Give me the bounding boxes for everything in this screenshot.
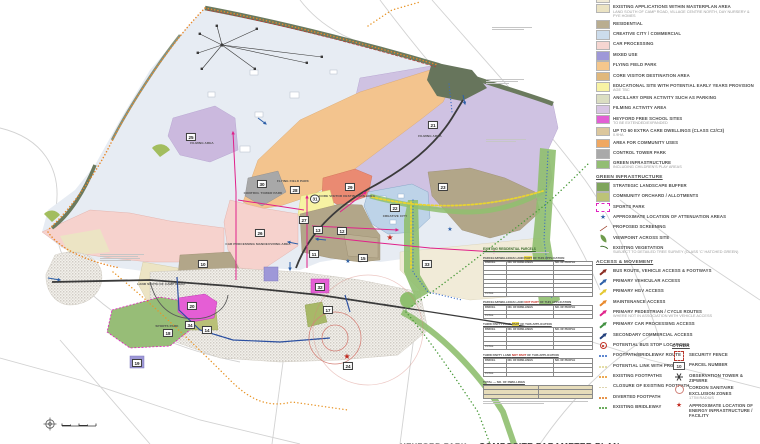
legend-item: RESIDENTIAL <box>596 21 758 29</box>
parcel-badge: 20 <box>187 302 197 310</box>
viewpoint-icon <box>596 235 610 243</box>
legend-item-label: CONTROL TOWER PARK <box>613 150 758 155</box>
legend-item: CREATIVE CITY / COMMERCIAL <box>596 31 758 39</box>
legend-item: SPORTS PARK <box>596 204 758 212</box>
legend-item: PRIMARY CAR PROCESSING ACCESS <box>596 321 758 329</box>
dots-icon <box>596 404 610 412</box>
cordon-icon <box>672 385 686 393</box>
swatch-icon <box>596 128 610 136</box>
annotation-note <box>492 26 532 31</box>
scale-bar <box>62 424 96 427</box>
legend-item: SECURITY FENCE <box>672 352 758 360</box>
legend-item-label: COMMUNITY ORCHARD / ALLOTMENTS <box>613 193 758 198</box>
swatch-icon <box>596 21 610 29</box>
annotation-note <box>100 253 144 262</box>
legend-item: ★APPROXIMATE LOCATION OF ATTENUATION ARE… <box>596 214 758 222</box>
redstar-icon: ★ <box>672 403 686 411</box>
legend-other-header: OTHER <box>672 344 758 349</box>
map-label: FILMING AREA <box>190 141 213 145</box>
swatch-icon <box>596 183 610 191</box>
swatch-icon <box>596 62 610 70</box>
legend-item-label: CAR PROCESSING <box>613 41 758 46</box>
legend-item: SECONDARY COMMERCIAL ACCESS <box>596 332 758 340</box>
schedule-table: PARCELNO. OF DWELLINGSNO. OF PEOPLETOTAL <box>483 305 593 319</box>
map-label: LAND SOUTH OF CAMP ROAD <box>137 282 185 286</box>
legend-item: CORE VISITOR DESTINATION AREA <box>596 73 758 81</box>
legend-item-sub: 177M RADIUS <box>689 396 758 400</box>
legend-item: AREA FOR COMMUNITY USES <box>596 140 758 148</box>
drawing-title: HEYFORD PARK - COMPOSITE PARAMETER PLAN … <box>400 436 633 444</box>
legend-item: 10PARCEL NUMBER <box>672 362 758 370</box>
asterisk-icon <box>672 373 686 381</box>
legend-item-label: CORE VISITOR DESTINATION AREA <box>613 73 758 78</box>
legend-item-label: PRIMARY HGV ACCESS <box>613 288 758 293</box>
parcel-badge: 13 <box>313 226 323 234</box>
legend-item-label: FILMING ACTIVITY AREA <box>613 105 758 110</box>
legend-item-label: MAINTENANCE ACCESS <box>613 299 758 304</box>
map-label: SPORTS PARK <box>155 324 178 328</box>
dots-icon <box>596 373 610 381</box>
svg-text:★: ★ <box>447 226 452 233</box>
swatch-icon <box>596 140 610 148</box>
compass-icon <box>44 418 57 431</box>
schedule-table-title: THIRD PARTY LAND PART OF THIS APPLICATIO… <box>483 322 593 326</box>
vegetation-icon <box>596 245 610 253</box>
parcel-badge: 28 <box>290 186 300 194</box>
legend-landuse: EXISTING COMMERCIAL AREASEXISTING APPLIC… <box>596 0 758 170</box>
svg-text:★: ★ <box>386 233 393 242</box>
legend-access-header: ACCESS & MOVEMENT <box>596 260 758 265</box>
legend-item-label: ANCILLARY OPEN ACTIVITY SUCH AS PARKING <box>613 95 758 100</box>
legend-item: ★APPROXIMATE LOCATION OF ENERGY INFRASTR… <box>672 403 758 418</box>
legend-item-label: APPROXIMATE LOCATION OF ENERGY INFRASTRU… <box>689 403 758 418</box>
annotation-note <box>486 138 526 143</box>
legend-item-label: BUS ROUTE, VEHICLE ACCESS & FOOTWAYS <box>613 268 758 273</box>
parcel-badge: 33 <box>422 260 432 268</box>
arrow-icon <box>596 278 610 286</box>
legend-item-label: AREA FOR COMMUNITY USES <box>613 140 758 145</box>
legend-item-label: FLYING FIELD PARK <box>613 62 758 67</box>
swatch-icon <box>596 193 610 201</box>
schedule-note <box>483 401 593 404</box>
parcel-badge: 10 <box>198 260 208 268</box>
parcel-badge: 34 <box>185 321 195 329</box>
legend-item: CORDON SANITAIRE EXCLUSION ZONES177M RAD… <box>672 385 758 400</box>
parcel-badge: 24 <box>343 362 353 370</box>
arrow-icon <box>596 321 610 329</box>
map-label: CREATIVE CITY <box>383 214 408 218</box>
schedule-table: PARCELNO. OF DWELLINGSNO. OF PEOPLETOTAL <box>483 327 593 350</box>
legend-green: STRATEGIC LANDSCAPE BUFFERCOMMUNITY ORCH… <box>596 183 758 255</box>
parcel-badge: 23 <box>438 183 448 191</box>
dots-icon <box>596 363 610 371</box>
legend-item: MIXED USE <box>596 52 758 60</box>
annotation-note <box>486 78 524 85</box>
schedule-table: PARCELNO. OF DWELLINGSNO. OF PEOPLETOTAL <box>483 261 593 297</box>
swatch-icon <box>596 31 610 39</box>
arrow-icon <box>596 268 610 276</box>
parcel-badge: 21 <box>428 121 438 129</box>
legend-item: OBSERVATION TOWER & ZIPWIRE <box>672 373 758 383</box>
parcelbox-icon: 10 <box>672 362 686 370</box>
legend-item: EXISTING APPLICATIONS WITHIN MASTERPLAN … <box>596 4 758 18</box>
swatch-icon <box>596 160 610 168</box>
sports-park <box>107 297 190 348</box>
sports-icon <box>596 204 610 212</box>
legend-item-label: SECURITY FENCE <box>689 352 758 357</box>
legend-item: CONTROL TOWER PARK <box>596 150 758 158</box>
legend-item-label: PRIMARY VEHICULAR ACCESS <box>613 278 758 283</box>
arrow-icon <box>596 332 610 340</box>
swatch-icon <box>596 150 610 158</box>
parcel-badge: 11 <box>309 250 319 258</box>
map-label: FILMING AREA <box>418 134 441 138</box>
masterplan-page: ★ ★ ★ ★ <box>0 0 760 444</box>
map-label: CORE VISITOR DESTINATION AREA <box>319 194 375 198</box>
legend-item-label: CREATIVE CITY / COMMERCIAL <box>613 31 758 36</box>
parcel-badge: 27 <box>299 216 309 224</box>
parcel-badge: 18 <box>163 329 173 337</box>
busstop-icon <box>596 342 610 350</box>
legend-item-sub: WHERE NOT IN ASSOCIATION WITH VEHICLE AC… <box>613 314 758 318</box>
legend-item: EDUCATIONAL SITE WITH POTENTIAL EARLY YE… <box>596 83 758 93</box>
schedule-table-title: PARCELS/DWELLINGS LAND NOT PART OF THIS … <box>483 300 593 304</box>
swatch-icon <box>596 95 610 103</box>
swatch-icon <box>596 116 610 124</box>
dots-icon <box>596 352 610 360</box>
schedule-intro: EXISTING RESIDENTIAL PARCELS <box>483 247 593 251</box>
swatch-icon <box>596 4 610 12</box>
map-label: CONTROL TOWER PARK <box>244 191 283 195</box>
legend-item: PRIMARY PEDESTRIAN / CYCLE ROUTESWHERE N… <box>596 309 758 319</box>
legend-item-label: RESIDENTIAL <box>613 21 758 26</box>
swatch-icon <box>596 83 610 91</box>
legend-item: VIEWPOINT ACROSS SITE <box>596 235 758 243</box>
dwelling-schedule-tables: EXISTING RESIDENTIAL PARCELS PARCELS/DWE… <box>483 247 593 405</box>
legend-item-label: MIXED USE <box>613 52 758 57</box>
summary-table-title: TOTAL — NO. OF DWELLINGS <box>483 380 593 384</box>
legend-item-label: OBSERVATION TOWER & ZIPWIRE <box>689 373 758 383</box>
legend-item-sub: TO BE EXTENDED/EXPANDED <box>613 121 758 125</box>
swatch-icon <box>596 52 610 60</box>
legend-item-label: CORDON SANITAIRE EXCLUSION ZONES <box>689 385 758 395</box>
dots-icon <box>596 394 610 402</box>
schedule-blocks: PARCELS/DWELLINGS LAND PART OF THIS APPL… <box>483 256 593 399</box>
swatch-icon <box>596 0 610 2</box>
fence-icon <box>672 352 686 360</box>
schedule-table-title: PARCELS/DWELLINGS LAND PART OF THIS APPL… <box>483 256 593 260</box>
legend-item-label: APPROXIMATE LOCATION OF ATTENUATION AREA… <box>613 214 758 219</box>
legend-item: UP TO 60 EXTRA CARE DWELLINGS (CLASS C2/… <box>596 128 758 138</box>
parcel-badge: 32 <box>315 283 325 291</box>
map-label: FLYING FIELD PARK <box>277 179 309 183</box>
parcel-badge: 17 <box>323 306 333 314</box>
legend-item: STRATEGIC LANDSCAPE BUFFER <box>596 183 758 191</box>
parcel-badge: 15 <box>358 254 368 262</box>
legend-item: EXISTING VEGETATIONSUBJECT TO DETAILED T… <box>596 245 758 255</box>
schedule-table-title: THIRD PARTY LAND NOT PART OF THIS APPLIC… <box>483 353 593 357</box>
legend-other: SECURITY FENCE10PARCEL NUMBEROBSERVATION… <box>672 352 758 418</box>
legend-item-sub: SUBJECT TO DETAILED TREE SURVEY (CLASS '… <box>613 250 758 254</box>
screening-icon <box>596 224 610 232</box>
legend-item-label: PARCEL NUMBER <box>689 362 758 367</box>
legend-item-label: SECONDARY COMMERCIAL ACCESS <box>613 332 758 337</box>
parcel-badge: 30 <box>257 180 267 188</box>
legend-item: FILMING ACTIVITY AREA <box>596 105 758 113</box>
legend-item: PROPOSED SCREENING <box>596 224 758 232</box>
parcel-badge: 26 <box>255 229 265 237</box>
star-icon: ★ <box>596 214 610 222</box>
legend-item-sub: INCLUDING CHILDREN'S PLAY AREAS <box>613 165 758 169</box>
arrow-icon <box>596 299 610 307</box>
swatch-icon <box>596 105 610 113</box>
legend-item: CAR PROCESSING <box>596 41 758 49</box>
mixed-use-1 <box>264 267 278 281</box>
legend-item-label: SPORTS PARK <box>613 204 758 209</box>
svg-text:★: ★ <box>343 352 350 361</box>
parcel-badge: 22 <box>390 204 400 212</box>
legend-item-sub: LAND SOUTH OF CAMP ROAD, VILLAGE CENTRE … <box>613 10 758 19</box>
legend-item-label: PROPOSED SCREENING <box>613 224 758 229</box>
legend-item: BUS ROUTE, VEHICLE ACCESS & FOOTWAYS <box>596 268 758 276</box>
legend-item-sub: AGE TBC <box>613 88 758 92</box>
parcel-badge: 29 <box>345 183 355 191</box>
svg-text:★: ★ <box>345 258 350 265</box>
arrow-icon <box>596 288 610 296</box>
parcel-badge: 25 <box>186 133 196 141</box>
map-label: CAR PROCESSING MANOEUVRING AREA <box>225 242 290 246</box>
legend-green-header: GREEN INFRASTRUCTURE <box>596 175 758 180</box>
summary-table <box>483 385 593 399</box>
legend-item: GREEN INFRASTRUCTUREINCLUDING CHILDREN'S… <box>596 160 758 170</box>
dots-icon <box>596 383 610 391</box>
legend-other-panel: OTHER SECURITY FENCE10PARCEL NUMBEROBSER… <box>672 344 758 420</box>
swatch-icon <box>596 73 610 81</box>
legend-item: PRIMARY HGV ACCESS <box>596 288 758 296</box>
legend-item: EXISTING COMMERCIAL AREAS <box>596 0 758 2</box>
legend-item: MAINTENANCE ACCESS <box>596 299 758 307</box>
legend-item-label: STRATEGIC LANDSCAPE BUFFER <box>613 183 758 188</box>
legend-item: ANCILLARY OPEN ACTIVITY SUCH AS PARKING <box>596 95 758 103</box>
legend-item-label: PRIMARY CAR PROCESSING ACCESS <box>613 321 758 326</box>
parcel-badge: 19 <box>132 359 142 367</box>
legend-item: HEYFORD FREE SCHOOL SITESTO BE EXTENDED/… <box>596 116 758 126</box>
legend-item-label: VIEWPOINT ACROSS SITE <box>613 235 758 240</box>
legend-item-label: EDUCATIONAL SITE WITH POTENTIAL EARLY YE… <box>613 83 758 88</box>
legend-item: PRIMARY VEHICULAR ACCESS <box>596 278 758 286</box>
legend-item: FLYING FIELD PARK <box>596 62 758 70</box>
parcel-badge: 12 <box>337 227 347 235</box>
swatch-icon <box>596 41 610 49</box>
legend-item-sub: 0.9HA <box>613 133 758 137</box>
legend-item: COMMUNITY ORCHARD / ALLOTMENTS <box>596 193 758 201</box>
parcel-badge: 14 <box>202 326 212 334</box>
schedule-table: PARCELNO. OF DWELLINGSNO. OF PEOPLETOTAL <box>483 358 593 377</box>
arrow-icon <box>596 309 610 317</box>
